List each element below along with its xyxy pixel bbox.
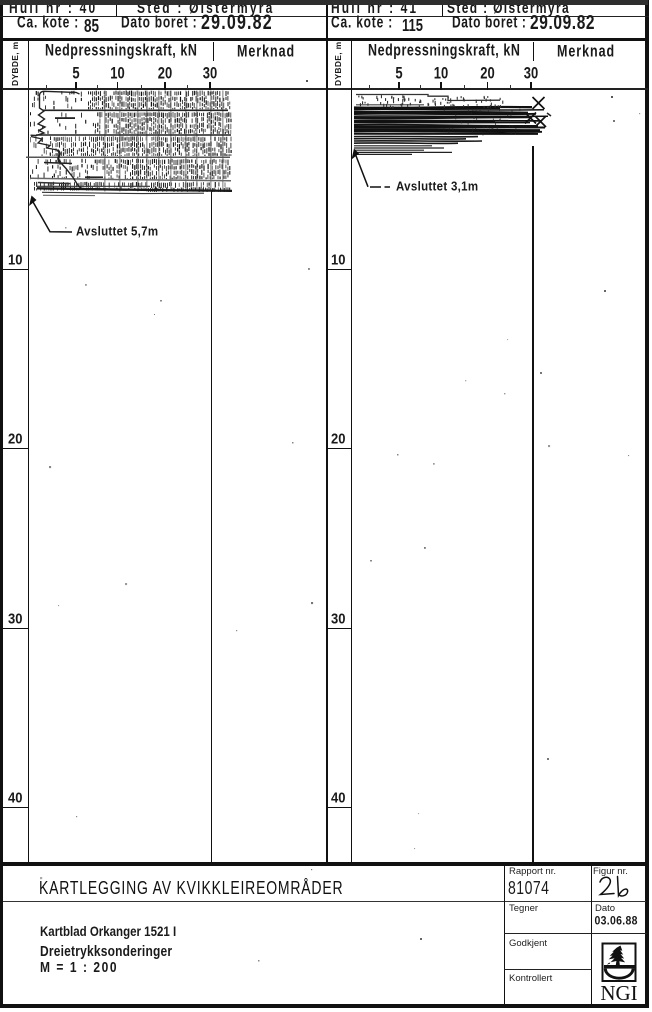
svg-text:NGI: NGI <box>600 981 637 1005</box>
